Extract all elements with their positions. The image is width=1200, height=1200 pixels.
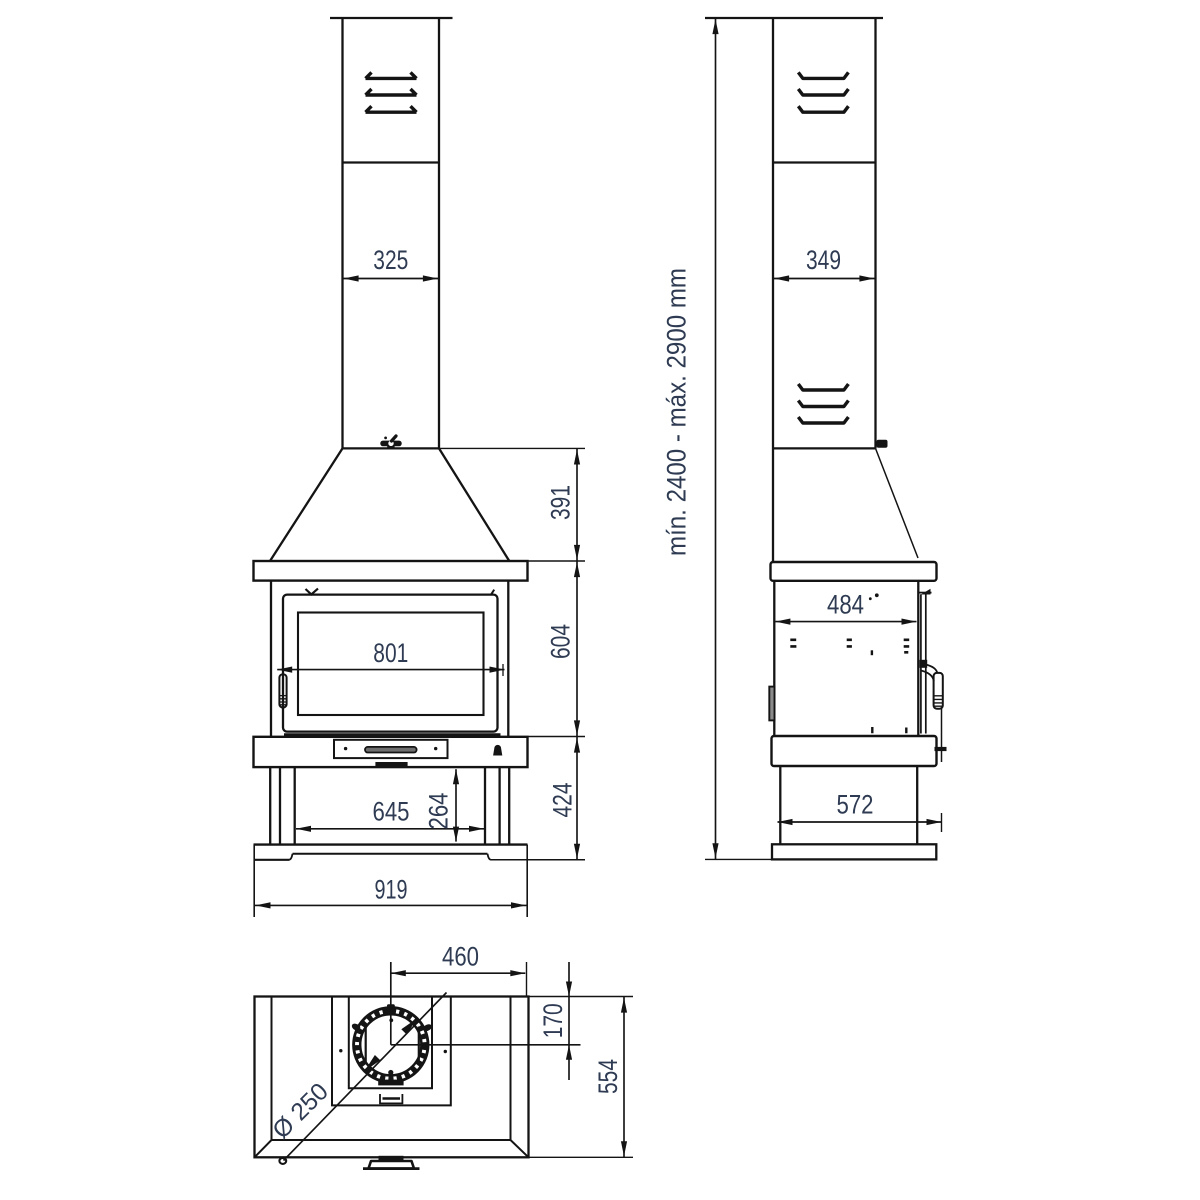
- svg-text:572: 572: [837, 790, 874, 820]
- svg-text:801: 801: [373, 638, 408, 668]
- svg-text:Ø 250: Ø 250: [268, 1078, 334, 1144]
- svg-text:mín. 2400 - máx. 2900 mm: mín. 2400 - máx. 2900 mm: [662, 268, 692, 556]
- svg-text:484: 484: [827, 590, 864, 620]
- svg-text:325: 325: [373, 245, 408, 275]
- svg-text:919: 919: [375, 875, 408, 905]
- svg-text:424: 424: [548, 783, 578, 818]
- svg-text:645: 645: [373, 797, 410, 827]
- svg-text:349: 349: [806, 245, 841, 275]
- svg-text:264: 264: [424, 793, 454, 830]
- svg-text:604: 604: [545, 624, 575, 659]
- svg-text:554: 554: [593, 1059, 623, 1094]
- svg-text:170: 170: [538, 1003, 568, 1038]
- svg-text:460: 460: [442, 941, 479, 971]
- svg-text:391: 391: [545, 485, 575, 520]
